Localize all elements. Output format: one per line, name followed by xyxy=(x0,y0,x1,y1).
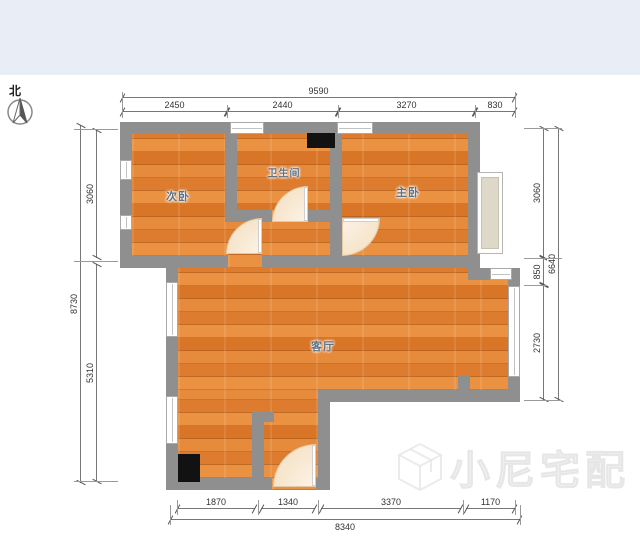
dim-bottom-seg-1: 1870 xyxy=(177,508,255,509)
label-secondary-bedroom: 次卧 xyxy=(166,188,190,204)
dim-top-seg-3: 3270 xyxy=(338,111,475,112)
dim-guide xyxy=(258,500,259,515)
watermark-cube-icon xyxy=(396,441,444,493)
wall-living-bottom-right xyxy=(330,390,520,402)
wall-entry-right xyxy=(318,390,330,490)
label-bathroom: 卫生间 xyxy=(268,165,301,180)
shaft-box-entry xyxy=(178,454,200,482)
dim-guide xyxy=(338,105,339,118)
dim-guide xyxy=(74,129,118,130)
wall-left-upper xyxy=(120,122,132,268)
dim-top-seg-2: 2440 xyxy=(227,111,338,112)
floor-door-gap-bedroom xyxy=(228,254,262,268)
dim-right-seg-3: 2730 xyxy=(543,285,544,400)
label-master-bedroom: 主卧 xyxy=(396,184,420,200)
door-leaf-entry xyxy=(312,445,316,486)
bay-window-glass xyxy=(481,177,499,249)
dim-guide xyxy=(122,92,123,118)
label-living-room: 客厅 xyxy=(311,338,335,354)
window-living-right xyxy=(508,286,520,377)
wall-bottom-right-of-door xyxy=(316,478,330,490)
dim-left-total: 8730 xyxy=(80,125,81,483)
floor-living-room xyxy=(178,268,508,390)
floor-living-extension xyxy=(480,280,508,390)
dim-guide xyxy=(524,128,562,129)
dim-right-total: 6640 xyxy=(558,128,559,400)
dim-top-seg-4: 830 xyxy=(475,111,515,112)
wall-mid-right xyxy=(262,256,480,268)
wall-entry-divider-stub xyxy=(252,412,274,422)
dim-guide xyxy=(515,500,516,515)
dim-top-total: 9590 xyxy=(122,97,515,98)
dim-guide xyxy=(74,261,118,262)
dim-guide xyxy=(520,505,521,525)
dim-right-seg-2: 850 xyxy=(543,258,544,285)
dim-guide xyxy=(74,481,118,482)
dim-right-seg-1: 3060 xyxy=(543,128,544,258)
door-leaf-bathroom xyxy=(304,187,308,221)
window-master-top xyxy=(337,122,373,134)
dim-guide xyxy=(475,105,476,118)
dim-bottom-seg-3: 3370 xyxy=(321,508,461,509)
flue-box-bathroom xyxy=(307,133,335,148)
wall-top xyxy=(120,122,480,134)
wall-bathroom-bottom-right xyxy=(308,210,342,222)
north-compass-icon xyxy=(4,96,36,128)
watermark: 小尼宅配 xyxy=(396,438,630,496)
bay-window-master xyxy=(477,172,503,254)
door-leaf-secondary-bedroom xyxy=(258,219,262,253)
watermark-text: 小尼宅配 xyxy=(450,438,630,496)
dim-bottom-seg-2: 1340 xyxy=(261,508,315,509)
dim-guide xyxy=(524,285,547,286)
dim-guide xyxy=(524,258,562,259)
window-bedroom2-left-2 xyxy=(120,215,132,230)
window-bedroom2-left-1 xyxy=(120,160,132,180)
dim-top-seg-1: 2450 xyxy=(122,111,227,112)
dim-guide xyxy=(170,505,171,525)
window-extension-top xyxy=(490,268,512,280)
top-banner xyxy=(0,0,640,75)
dim-left-seg-2: 5310 xyxy=(96,264,97,482)
wall-bedroom2-bathroom-divider xyxy=(225,134,237,222)
window-living-left-2 xyxy=(166,396,178,444)
wall-bathroom-master-divider xyxy=(330,134,342,268)
wall-stub-living xyxy=(458,375,470,402)
dim-guide xyxy=(463,500,464,515)
window-living-left-1 xyxy=(166,282,178,337)
door-leaf-master-bedroom xyxy=(343,218,379,222)
window-bathroom-top xyxy=(230,122,264,134)
dim-guide xyxy=(177,500,178,515)
wall-entry-divider xyxy=(252,412,264,490)
dim-guide xyxy=(318,500,319,515)
dim-bottom-seg-4: 1170 xyxy=(466,508,515,509)
dim-bottom-total: 8340 xyxy=(170,519,520,520)
floorplan-screenshot: 北 xyxy=(0,0,640,547)
dim-guide xyxy=(227,105,228,118)
dim-guide xyxy=(524,400,562,401)
dim-guide xyxy=(515,92,516,118)
dim-left-seg-1: 3060 xyxy=(96,130,97,258)
